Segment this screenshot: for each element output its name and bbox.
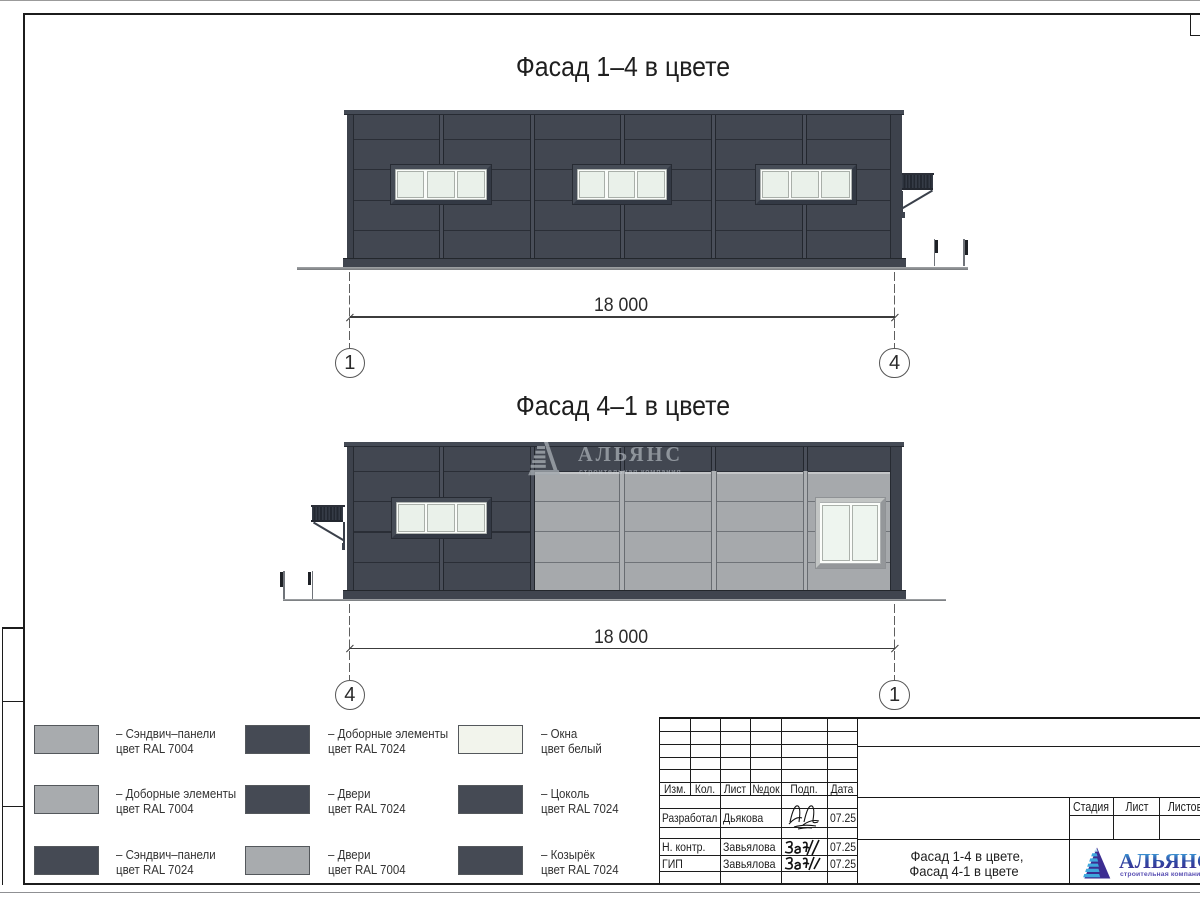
svg-text:АЛЬЯНС: АЛЬЯНС <box>1119 849 1200 873</box>
